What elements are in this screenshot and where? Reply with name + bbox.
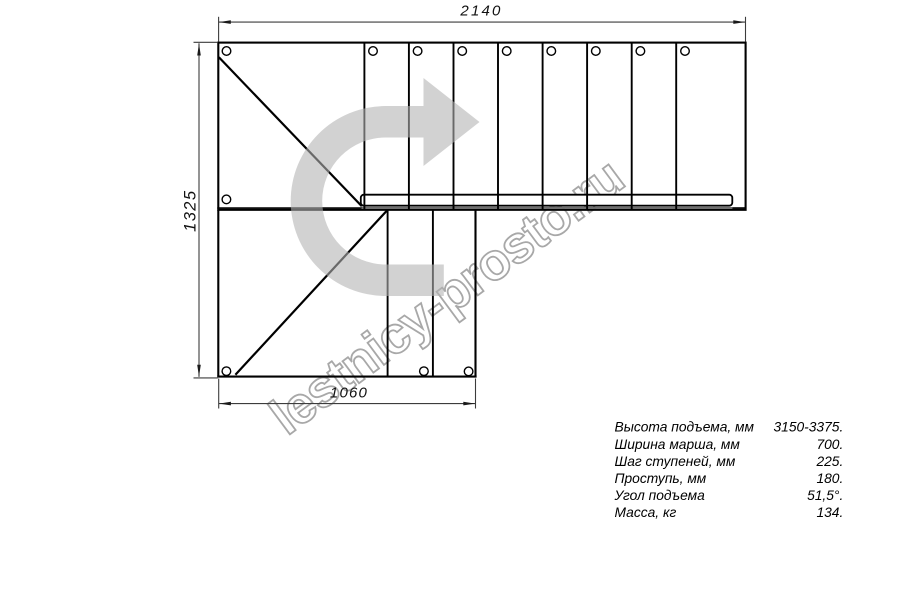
svg-text:1060: 1060 (330, 384, 368, 401)
svg-text:Шаг ступеней, мм: Шаг ступеней, мм (615, 454, 736, 469)
svg-text:225.: 225. (815, 454, 843, 469)
svg-text:134.: 134. (816, 505, 843, 520)
svg-text:Масса, кг: Масса, кг (615, 505, 677, 520)
svg-text:Ширина марша, мм: Ширина марша, мм (615, 437, 741, 452)
svg-text:3150-3375.: 3150-3375. (773, 420, 843, 435)
svg-text:700.: 700. (816, 437, 843, 452)
svg-text:2140: 2140 (459, 2, 502, 19)
svg-text:1325: 1325 (182, 190, 200, 232)
svg-text:180.: 180. (816, 471, 843, 486)
svg-text:51,5°.: 51,5°. (807, 488, 843, 503)
svg-text:Проступь, мм: Проступь, мм (615, 471, 707, 486)
svg-text:Угол подъема: Угол подъема (614, 488, 706, 503)
svg-text:Высота подъема, мм: Высота подъема, мм (615, 420, 755, 435)
